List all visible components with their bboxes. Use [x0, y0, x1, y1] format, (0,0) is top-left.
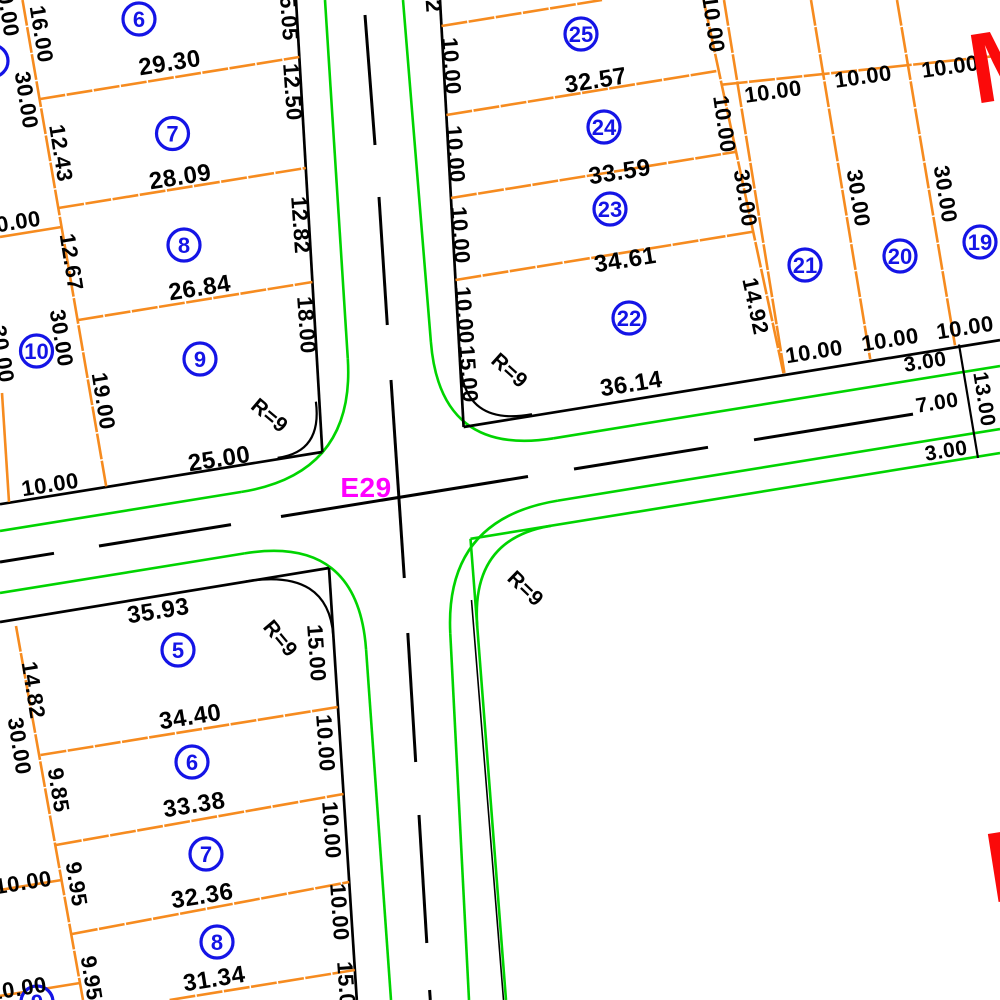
svg-text:30.00: 30.00	[0, 324, 19, 385]
svg-text:5: 5	[172, 638, 184, 663]
svg-text:8: 8	[211, 930, 223, 955]
svg-text:25.00: 25.00	[186, 441, 252, 477]
svg-text:12.50: 12.50	[278, 62, 307, 121]
svg-text:10.00: 10.00	[446, 205, 475, 264]
svg-text:10.00: 10.00	[0, 866, 53, 900]
svg-text:R=9: R=9	[258, 616, 302, 662]
svg-text:14.82: 14.82	[17, 660, 51, 721]
svg-text:23: 23	[598, 197, 622, 222]
svg-text:9: 9	[194, 347, 206, 372]
svg-text:15.05: 15.05	[274, 0, 303, 42]
svg-text:12.43: 12.43	[44, 123, 78, 184]
svg-text:15.00: 15.00	[332, 960, 361, 1000]
svg-text:33.38: 33.38	[161, 787, 227, 823]
svg-text:6: 6	[133, 7, 145, 32]
svg-text:12.82: 12.82	[286, 195, 315, 254]
svg-text:10.00: 10.00	[784, 335, 845, 369]
svg-text:10.00: 10.00	[860, 323, 921, 357]
svg-text:R=9: R=9	[246, 394, 292, 438]
svg-text:3.00: 3.00	[902, 347, 948, 376]
svg-text:R=9: R=9	[487, 349, 533, 393]
svg-text:12.67: 12.67	[55, 232, 89, 293]
svg-text:7.00: 7.00	[914, 388, 960, 417]
svg-text:10.00: 10.00	[833, 60, 893, 93]
svg-text:22: 22	[617, 306, 641, 331]
svg-text:M: M	[978, 801, 1000, 925]
svg-text:10.00: 10.00	[437, 36, 466, 95]
svg-text:20: 20	[888, 244, 912, 269]
svg-text:E29: E29	[340, 472, 391, 503]
svg-text:10.00: 10.00	[0, 972, 48, 1000]
svg-text:35.93: 35.93	[125, 593, 191, 629]
svg-text:R=9: R=9	[503, 566, 548, 611]
svg-text:24: 24	[592, 115, 617, 140]
svg-text:8: 8	[178, 233, 190, 258]
svg-text:30.00: 30.00	[0, 0, 24, 38]
svg-text:29.30: 29.30	[137, 45, 203, 81]
svg-text:10.00: 10.00	[20, 468, 81, 502]
svg-text:30.00: 30.00	[10, 70, 44, 131]
svg-text:34.40: 34.40	[157, 699, 223, 735]
svg-text:26.84: 26.84	[167, 270, 233, 306]
svg-text:16.00: 16.00	[25, 4, 59, 65]
svg-text:25: 25	[569, 22, 593, 47]
svg-text:19: 19	[968, 230, 992, 255]
svg-text:33.59: 33.59	[587, 154, 653, 190]
svg-text:32.57: 32.57	[563, 62, 629, 98]
svg-text:10.00: 10.00	[441, 124, 470, 183]
svg-text:10.00: 10.00	[935, 311, 996, 345]
svg-text:34.61: 34.61	[592, 242, 658, 278]
svg-text:10.00: 10.00	[317, 800, 346, 859]
svg-text:13.00: 13.00	[968, 370, 999, 428]
svg-text:15.00: 15.00	[454, 344, 483, 403]
svg-text:2: 2	[421, 0, 447, 13]
svg-text:14.92: 14.92	[737, 275, 773, 337]
svg-text:30.00: 30.00	[729, 168, 763, 229]
svg-text:32.36: 32.36	[169, 878, 235, 914]
svg-text:7: 7	[200, 842, 212, 867]
svg-text:31.34: 31.34	[181, 961, 247, 997]
svg-text:21: 21	[793, 253, 817, 278]
svg-text:7: 7	[166, 121, 178, 146]
svg-text:19.00: 19.00	[87, 371, 121, 432]
svg-text:10.00: 10.00	[450, 285, 479, 344]
svg-text:10.00: 10.00	[325, 882, 354, 941]
svg-text:10: 10	[24, 339, 48, 364]
svg-text:10.00: 10.00	[743, 75, 803, 108]
svg-text:6: 6	[186, 750, 198, 775]
svg-text:15.00: 15.00	[302, 623, 331, 682]
svg-text:10.00: 10.00	[311, 713, 340, 772]
svg-text:30.00: 30.00	[3, 716, 37, 777]
svg-text:28.09: 28.09	[147, 159, 213, 195]
svg-text:18.00: 18.00	[292, 295, 321, 354]
svg-text:10.00: 10.00	[708, 94, 741, 154]
